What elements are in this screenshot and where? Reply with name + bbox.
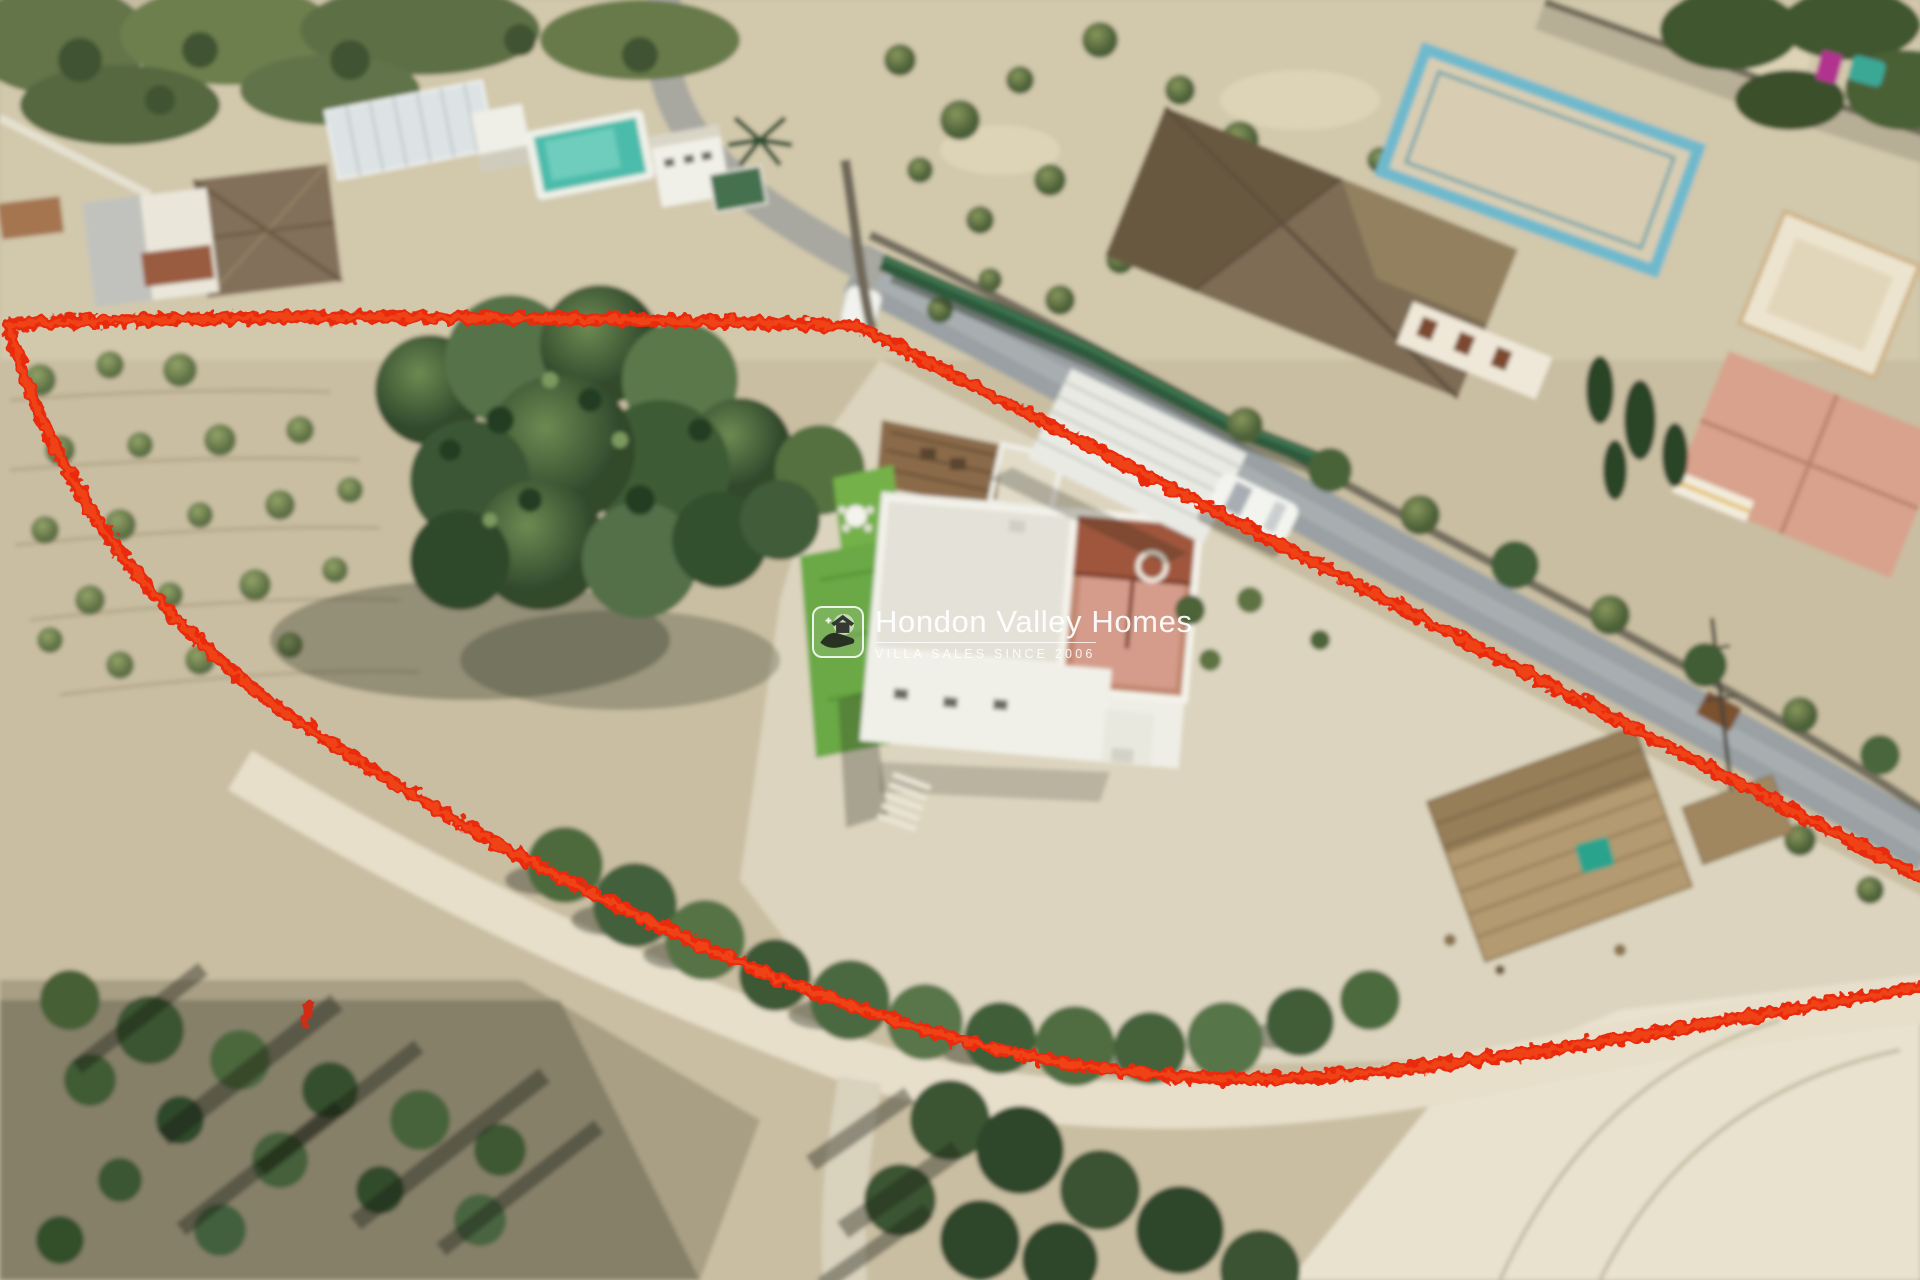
watermark: Hondon Valley Homes VILLA SALES SINCE 20…	[812, 606, 1193, 661]
round-garden-table	[845, 505, 867, 527]
white-flat-house	[82, 188, 219, 307]
dirt-road-branch	[844, 1080, 860, 1280]
watermark-title: Hondon Valley Homes	[875, 606, 1193, 638]
cypress-tree	[1586, 356, 1614, 424]
watermark-tagline: VILLA SALES SINCE 2006	[875, 642, 1096, 661]
hand-holding-house-glyph	[817, 611, 859, 653]
hand-holding-house-icon	[812, 606, 864, 658]
aerial-photo: Hondon Valley Homes VILLA SALES SINCE 20…	[0, 0, 1920, 1280]
watermark-text: Hondon Valley Homes VILLA SALES SINCE 20…	[875, 606, 1193, 661]
green-garage-doors	[709, 166, 767, 212]
